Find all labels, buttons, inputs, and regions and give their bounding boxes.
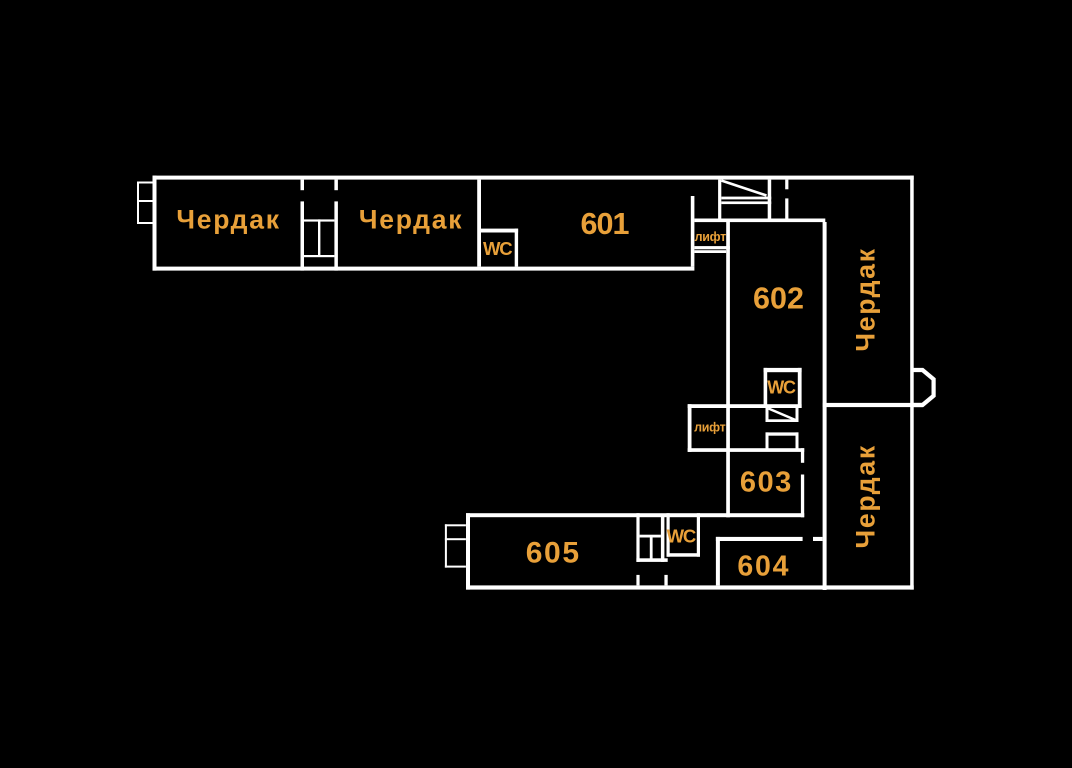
svg-text:603: 603: [740, 467, 793, 499]
svg-text:605: 605: [526, 536, 581, 569]
svg-text:лифт: лифт: [694, 421, 725, 435]
svg-text:602: 602: [753, 281, 804, 315]
svg-text:Чердак: Чердак: [359, 205, 464, 235]
svg-text:Чердак: Чердак: [851, 444, 881, 549]
svg-text:604: 604: [737, 551, 790, 583]
svg-text:WC: WC: [483, 238, 512, 259]
svg-text:601: 601: [581, 207, 630, 241]
svg-text:лифт: лифт: [695, 230, 726, 244]
svg-text:Чердак: Чердак: [851, 247, 881, 352]
svg-text:Чердак: Чердак: [176, 205, 281, 235]
svg-text:WC: WC: [667, 525, 696, 546]
svg-text:WC: WC: [767, 378, 796, 398]
